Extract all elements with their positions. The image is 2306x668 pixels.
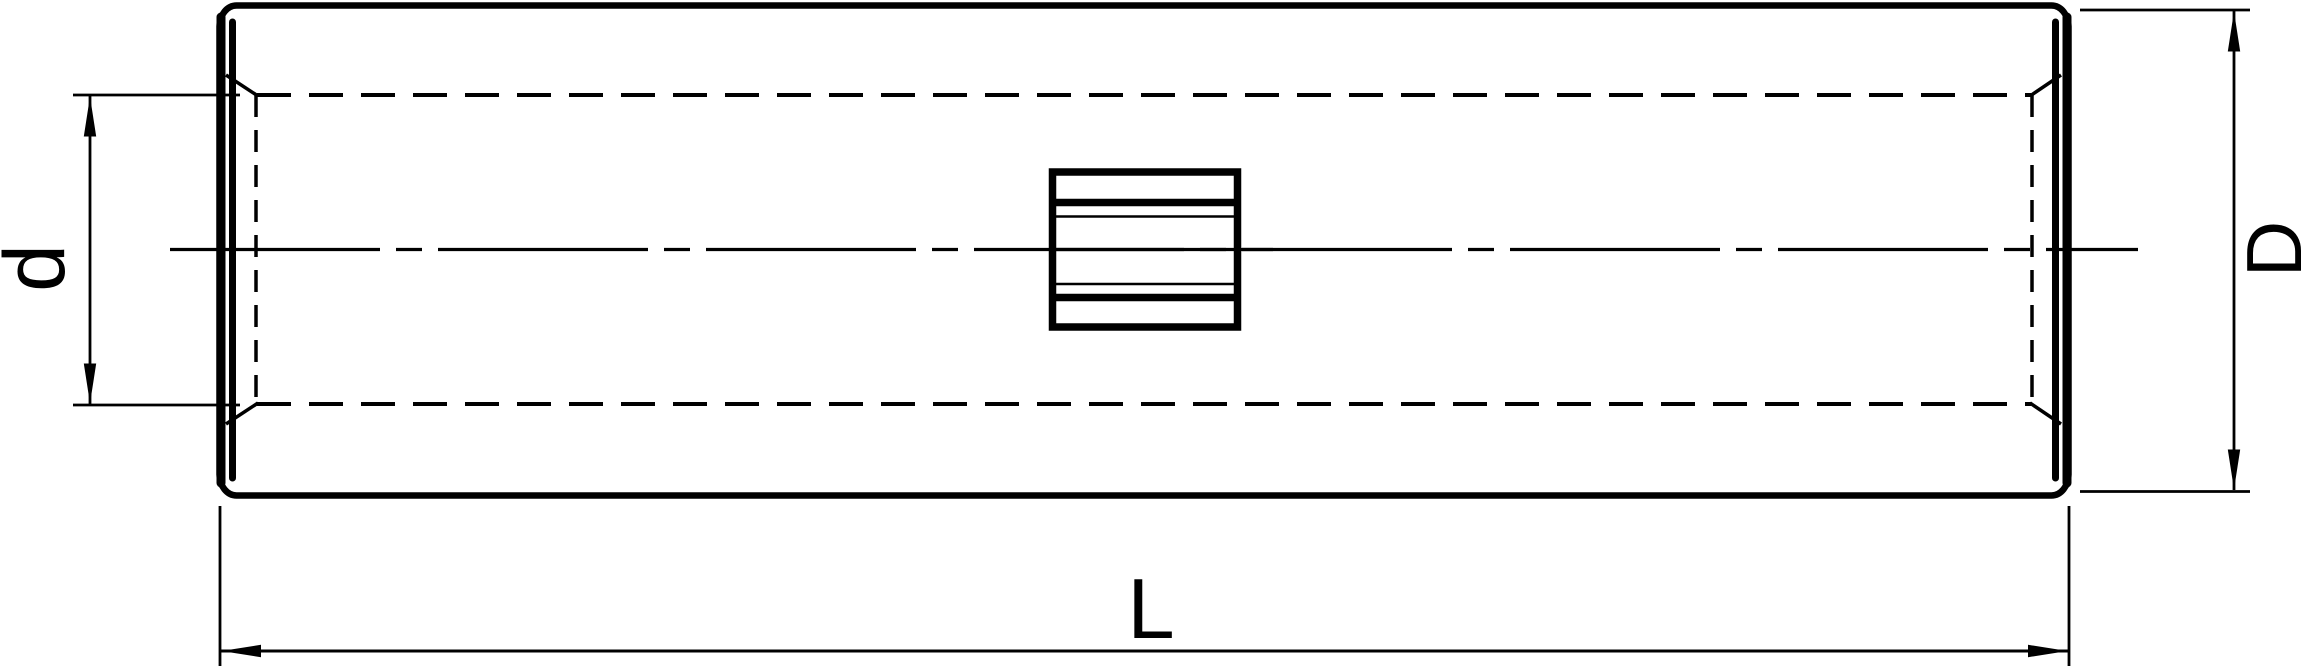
dim-d-label: d: [0, 244, 83, 292]
butt-connector-drawing: d D L: [0, 0, 2306, 668]
dim-D-arrow-up: [2228, 12, 2240, 52]
dim-d-arrow-down: [84, 364, 96, 404]
dim-D-label: D: [2230, 221, 2306, 277]
technical-drawing-canvas: d D L: [0, 0, 2306, 668]
dim-L-arrow-right: [2028, 645, 2068, 657]
dim-L-arrow-left: [222, 645, 262, 657]
dim-L-label: L: [1127, 562, 1174, 657]
dim-D-arrow-down: [2228, 450, 2240, 490]
dim-d-arrow-up: [84, 97, 96, 137]
